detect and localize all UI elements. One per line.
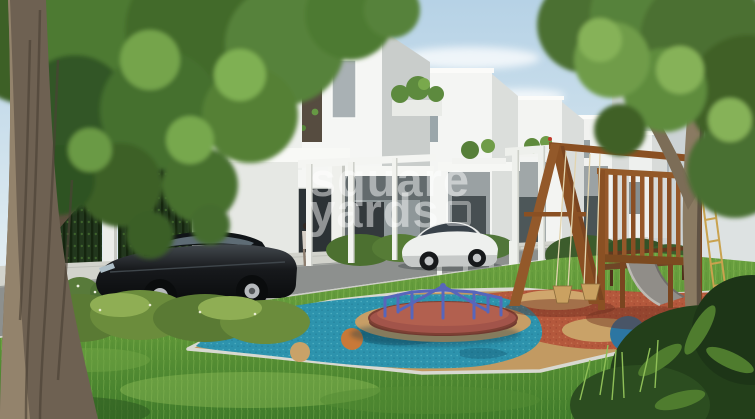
screenshot-root: square yards <box>0 0 755 419</box>
balcony-rail <box>452 158 506 164</box>
scene-render <box>0 0 755 419</box>
red-flowers <box>548 137 552 141</box>
